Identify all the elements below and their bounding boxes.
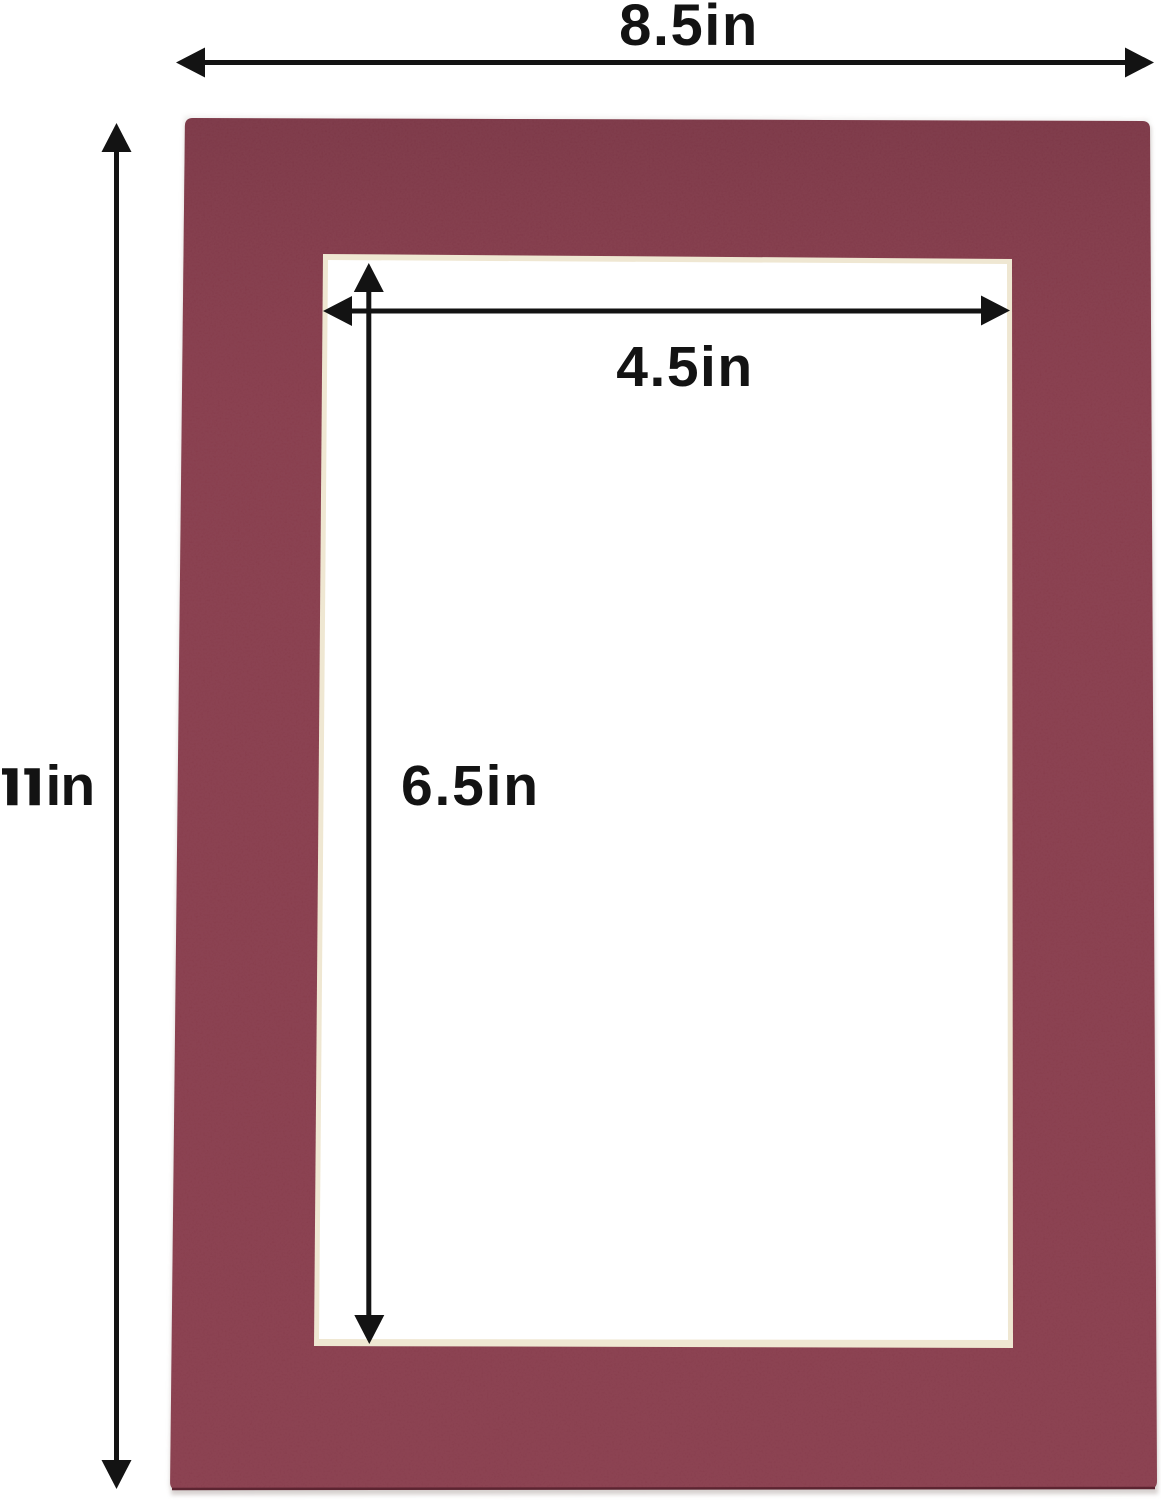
svg-text:8.5in: 8.5in: [619, 0, 759, 58]
svg-text:in: in: [46, 754, 95, 818]
svg-text:4.5in: 4.5in: [616, 335, 753, 399]
svg-text:6.5in: 6.5in: [401, 754, 540, 818]
